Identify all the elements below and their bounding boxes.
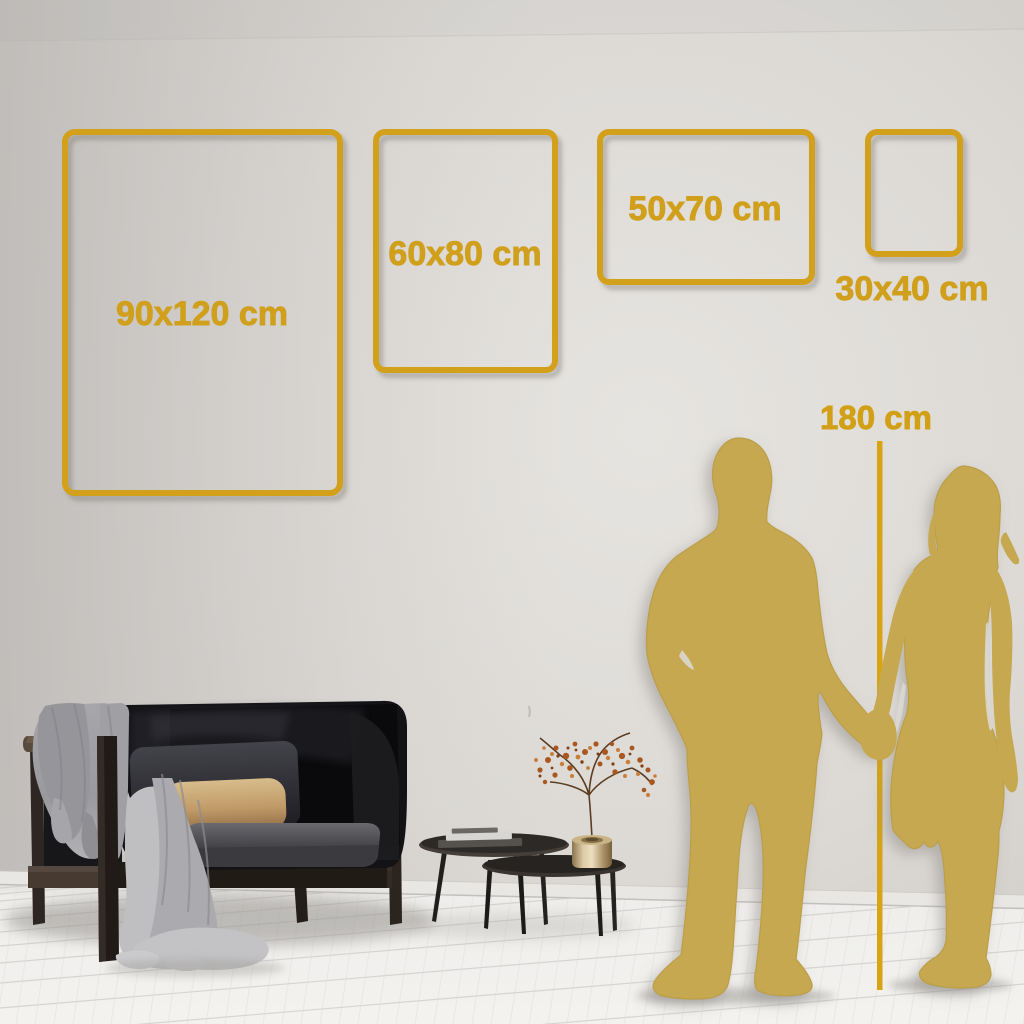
svg-text:180 cm: 180 cm [820, 399, 932, 436]
svg-text:90x120 cm: 90x120 cm [116, 295, 288, 333]
svg-text:60x80 cm: 60x80 cm [388, 235, 541, 273]
svg-text:50x70 cm: 50x70 cm [628, 190, 781, 228]
svg-text:30x40 cm: 30x40 cm [835, 270, 988, 308]
